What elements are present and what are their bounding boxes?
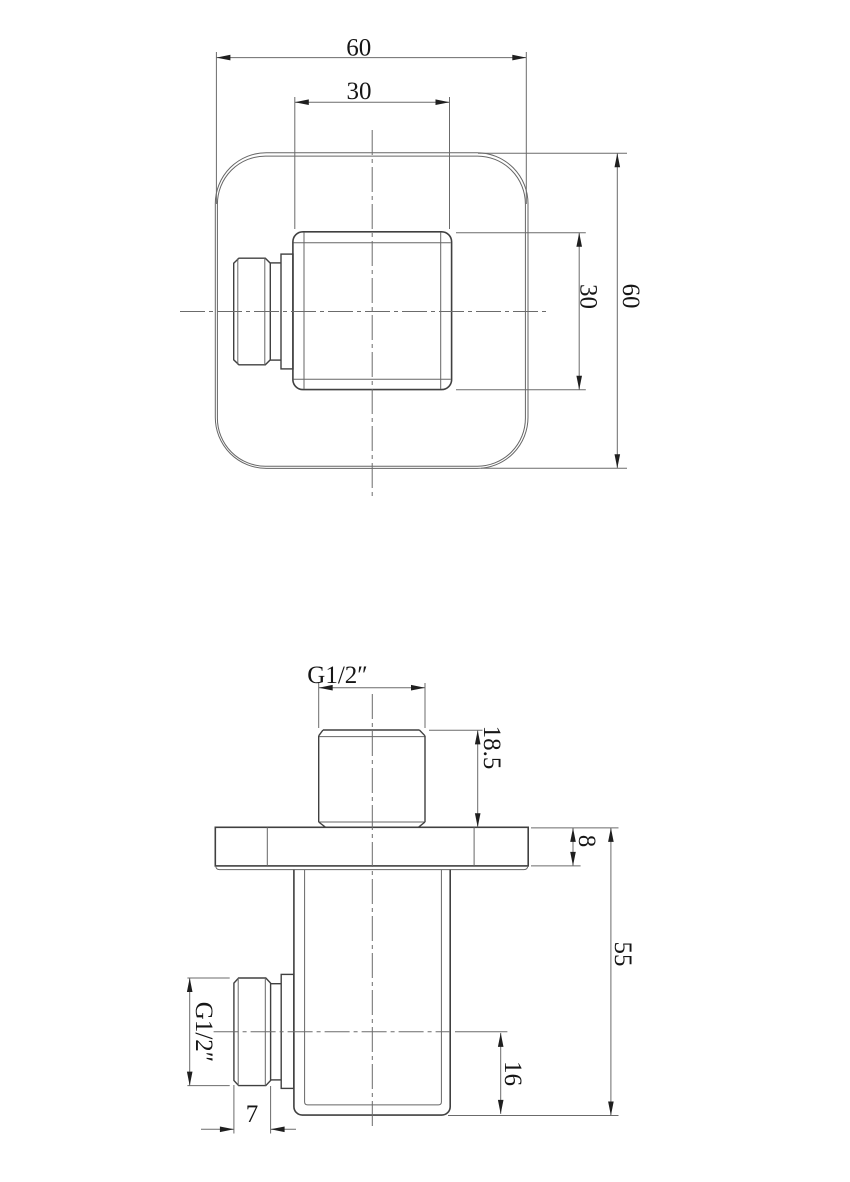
svg-text:G1/2″: G1/2″ — [190, 1002, 217, 1062]
svg-text:60: 60 — [617, 284, 644, 309]
svg-text:7: 7 — [246, 1101, 259, 1128]
svg-text:60: 60 — [346, 35, 371, 62]
svg-text:8: 8 — [573, 835, 600, 848]
svg-text:16: 16 — [499, 1061, 526, 1086]
svg-text:30: 30 — [575, 284, 602, 309]
svg-text:G1/2″: G1/2″ — [307, 662, 367, 689]
svg-text:30: 30 — [347, 78, 372, 105]
svg-text:55: 55 — [609, 942, 636, 967]
svg-text:18.5: 18.5 — [478, 726, 505, 770]
